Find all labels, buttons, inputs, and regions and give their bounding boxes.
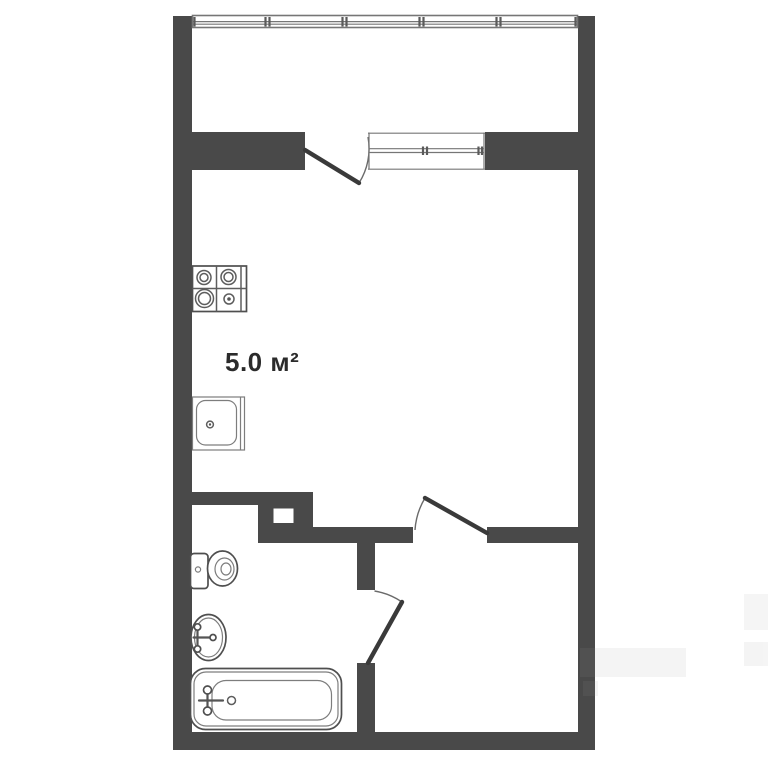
bathroom-door-swing-arc — [375, 591, 403, 602]
entry-door-leaf — [425, 498, 487, 533]
floor-plan-canvas: 5.0 м² — [0, 0, 768, 768]
bathroom-wall-lower-segment — [357, 663, 375, 732]
balcony-door-leaf — [305, 150, 359, 183]
left-wall — [173, 16, 192, 750]
washbasin-icon — [191, 615, 226, 661]
window-tick-marks — [423, 147, 482, 156]
outer-walls — [173, 16, 595, 750]
watermark-fragments — [580, 594, 768, 696]
bathroom-wall-upper-segment — [357, 543, 375, 590]
kitchen-sink-icon — [193, 397, 245, 450]
bathtub-icon — [191, 669, 342, 730]
interior-middle-wall — [192, 492, 578, 543]
balcony-wall-left-segment — [192, 132, 305, 170]
vent-shaft-opening — [274, 509, 294, 524]
right-wall — [578, 16, 595, 750]
floor-plan: 5.0 м² — [0, 0, 768, 768]
entry-door-swing-arc — [415, 498, 425, 530]
toilet-icon — [191, 551, 238, 589]
stove-4-burner-icon — [193, 266, 247, 312]
bottom-wall — [173, 732, 595, 750]
bathroom-wall — [357, 543, 375, 732]
balcony-wall-right-segment — [485, 132, 578, 170]
entry-door — [415, 498, 487, 533]
kitchen-area-label: 5.0 м² — [225, 347, 299, 377]
middle-wall-lower-bar-right — [487, 527, 578, 543]
balcony-door-swing-arc — [359, 137, 369, 183]
bathroom-door — [368, 591, 402, 663]
balcony-glazing-window-band — [193, 16, 578, 28]
bathroom-door-leaf — [368, 602, 402, 663]
balcony-door — [305, 137, 369, 183]
middle-wall-lower-bar-left — [313, 527, 413, 543]
balcony-window — [368, 133, 485, 170]
balcony-partition-wall — [192, 132, 578, 170]
